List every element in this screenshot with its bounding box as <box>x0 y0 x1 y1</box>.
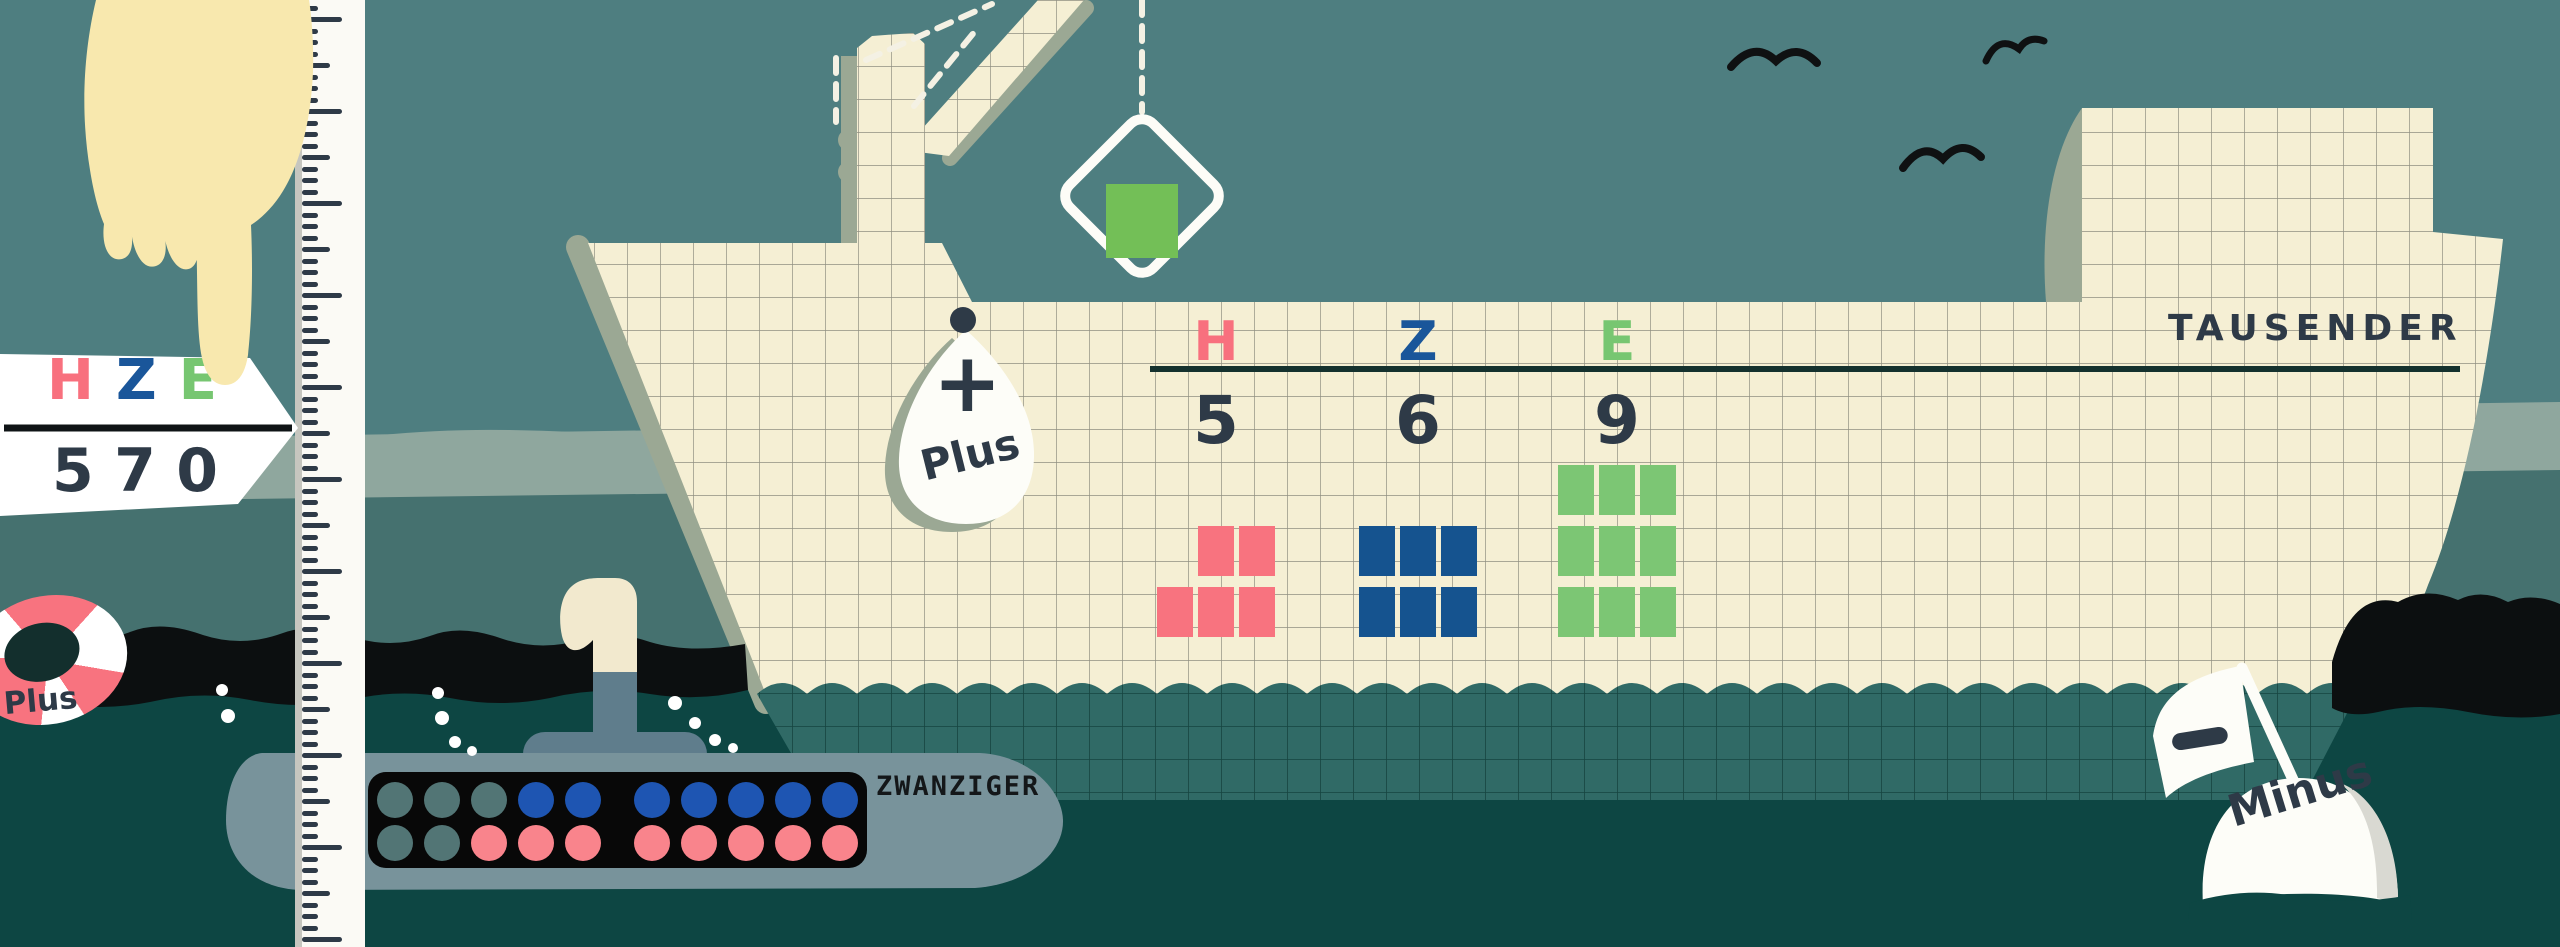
ruler-tick <box>302 17 342 22</box>
ruler-tick <box>302 408 318 413</box>
frame-dot-blue <box>634 782 670 818</box>
ruler-tick <box>302 282 318 287</box>
cargo-block-E[interactable] <box>1599 587 1635 637</box>
column-letter-E: E <box>1557 310 1677 373</box>
ruler-tick <box>302 328 318 333</box>
ruler-tick <box>302 167 318 172</box>
ruler-tick <box>302 604 318 609</box>
ruler-tick <box>302 558 318 563</box>
ruler-tick <box>302 63 330 68</box>
ruler-tick <box>302 86 318 91</box>
twenty-frame-panel <box>368 772 867 868</box>
frame-dot-pink <box>681 825 717 861</box>
sign-digit: 7 <box>114 436 156 506</box>
ruler-tick <box>302 903 318 908</box>
frame-dot-empty <box>424 825 460 861</box>
ruler-tick <box>302 40 318 45</box>
ruler-tick <box>302 420 318 425</box>
ruler-tick <box>302 857 318 862</box>
ruler-tick <box>302 6 318 11</box>
ruler-tick <box>302 351 318 356</box>
ruler-tick <box>302 477 342 482</box>
ruler-tick <box>302 247 330 252</box>
ruler-tick <box>302 822 318 827</box>
cargo-block-E[interactable] <box>1558 465 1594 515</box>
ruler-tick <box>302 650 318 655</box>
cargo-block-E[interactable] <box>1558 526 1594 576</box>
cargo-block-Z[interactable] <box>1359 526 1395 576</box>
cargo-block-H[interactable] <box>1239 526 1275 576</box>
ruler-tick <box>302 834 318 839</box>
sign-letter-H: H <box>47 348 94 413</box>
column-digit-Z: 6 <box>1358 382 1478 459</box>
ruler-tick <box>302 615 330 620</box>
game-scene: TAUSENDER H5Z6E9 + Plus ZWANZIGER Minus … <box>0 0 2560 947</box>
ruler-tick <box>302 592 318 597</box>
ruler-tick <box>302 98 318 103</box>
ruler-tick <box>302 627 318 632</box>
ruler-tick <box>302 638 318 643</box>
sign-letter-E: E <box>179 348 217 413</box>
cargo-block-H[interactable] <box>1239 587 1275 637</box>
frame-dot-pink <box>634 825 670 861</box>
ruler-tick <box>302 719 318 724</box>
ruler-tick <box>302 489 318 494</box>
wave-right <box>2332 593 2560 717</box>
frame-dot-blue <box>775 782 811 818</box>
ruler-tick <box>302 523 330 528</box>
ruler-tick <box>302 661 342 666</box>
ruler-tick <box>302 132 318 137</box>
cargo-block-E[interactable] <box>1640 526 1676 576</box>
cargo-block-E[interactable] <box>1558 587 1594 637</box>
cargo-block-Z[interactable] <box>1441 526 1477 576</box>
ruler-tick <box>302 224 318 229</box>
ruler-tick <box>302 512 318 517</box>
ruler-tick <box>302 213 318 218</box>
ruler-tick <box>302 374 318 379</box>
ruler-tick <box>302 178 318 183</box>
ruler-tick <box>302 765 318 770</box>
ruler-tick <box>302 799 330 804</box>
ruler-tick <box>302 454 318 459</box>
crane-jib-grid <box>903 0 1084 156</box>
ruler-tick <box>302 753 342 758</box>
mast-rivet <box>838 129 860 151</box>
ruler-tick <box>302 535 318 540</box>
plus-buoy-symbol: + <box>933 336 997 431</box>
ruler-tick <box>302 500 318 505</box>
bird-icon <box>1731 39 2044 168</box>
ruler-tick <box>302 581 318 586</box>
ruler-tick <box>302 707 330 712</box>
ruler-tick <box>302 339 330 344</box>
ruler-tick <box>302 305 318 310</box>
frame-dot-empty <box>471 782 507 818</box>
frame-dot-pink <box>822 825 858 861</box>
superstructure-shadow <box>2045 108 2083 302</box>
ruler-tick <box>302 201 342 206</box>
ruler-tick <box>302 673 318 678</box>
place-value-rule-line <box>1150 366 2460 372</box>
ruler-tick <box>302 742 318 747</box>
frame-dot-empty <box>377 782 413 818</box>
crane-cargo-block[interactable] <box>1106 184 1178 258</box>
ruler-tick <box>302 569 342 574</box>
cargo-block-E[interactable] <box>1640 587 1676 637</box>
column-letter-Z: Z <box>1358 310 1478 373</box>
ruler-tick <box>302 259 318 264</box>
ruler-tick <box>302 236 318 241</box>
sign-digit: 5 <box>52 436 94 506</box>
cargo-block-H[interactable] <box>1198 526 1234 576</box>
frame-dot-blue <box>565 782 601 818</box>
ruler-tick <box>302 270 318 275</box>
plus-buoy-knob <box>950 307 976 333</box>
ruler-tick <box>302 926 318 931</box>
ruler-tick <box>302 880 318 885</box>
frame-dot-empty <box>377 825 413 861</box>
cargo-block-H[interactable] <box>1157 587 1193 637</box>
ruler-tick <box>302 868 318 873</box>
thousands-label: TAUSENDER <box>2168 308 2463 349</box>
ruler-tick <box>302 891 330 896</box>
ruler-tick <box>302 52 318 57</box>
sign-number: 570 <box>52 436 218 506</box>
ruler-tick <box>302 75 318 80</box>
ruler-tick <box>302 155 330 160</box>
ruler-tick <box>302 776 318 781</box>
mast-rivet <box>838 161 860 183</box>
measuring-ruler <box>295 0 365 947</box>
frame-dot-blue <box>728 782 764 818</box>
ruler-tick <box>302 788 318 793</box>
lifebuoy-hole <box>0 615 86 690</box>
column-digit-E: 9 <box>1557 382 1677 459</box>
twenty-frame-label: ZWANZIGER <box>876 771 1040 802</box>
column-digit-H: 5 <box>1156 382 1276 459</box>
ruler-tick <box>302 937 342 942</box>
ruler-tick <box>302 293 342 298</box>
cargo-block-E[interactable] <box>1599 526 1635 576</box>
frame-dot-pink <box>518 825 554 861</box>
frame-dot-blue <box>822 782 858 818</box>
cargo-block-Z[interactable] <box>1441 587 1477 637</box>
ruler-tick <box>302 431 330 436</box>
ruler-tick <box>302 362 318 367</box>
sign-place-value-letters: HZE <box>47 348 217 413</box>
ruler-tick <box>302 397 318 402</box>
column-letter-H: H <box>1156 310 1276 373</box>
ruler-tick <box>302 443 318 448</box>
ruler-tick <box>302 684 318 689</box>
sign-letter-Z: Z <box>116 348 157 413</box>
cargo-block-Z[interactable] <box>1400 526 1436 576</box>
cargo-block-H[interactable] <box>1198 587 1234 637</box>
frame-dot-pink <box>728 825 764 861</box>
ruler-tick <box>302 144 318 149</box>
ruler-tick <box>302 190 318 195</box>
ruler-tick <box>302 121 318 126</box>
ruler-tick <box>302 109 342 114</box>
ruler-tick <box>302 29 318 34</box>
cargo-block-Z[interactable] <box>1359 587 1395 637</box>
frame-dot-pink <box>565 825 601 861</box>
ruler-tick <box>302 730 318 735</box>
frame-dot-pink <box>775 825 811 861</box>
cargo-block-E[interactable] <box>1640 465 1676 515</box>
lifebuoy-label: Plus <box>2 680 79 722</box>
cargo-block-Z[interactable] <box>1400 587 1436 637</box>
periscope-underwater <box>593 668 637 738</box>
frame-dot-blue <box>518 782 554 818</box>
ruler-tick <box>302 385 342 390</box>
ruler-tick <box>302 696 318 701</box>
frame-dot-blue <box>681 782 717 818</box>
ruler-tick <box>302 466 318 471</box>
frame-dot-empty <box>424 782 460 818</box>
cargo-block-E[interactable] <box>1599 465 1635 515</box>
ruler-tick <box>302 316 318 321</box>
ruler-tick <box>302 811 318 816</box>
sign-digit: 0 <box>176 436 218 506</box>
frame-dot-pink <box>471 825 507 861</box>
ruler-tick <box>302 546 318 551</box>
ruler-tick <box>302 914 318 919</box>
ruler-tick <box>302 845 342 850</box>
